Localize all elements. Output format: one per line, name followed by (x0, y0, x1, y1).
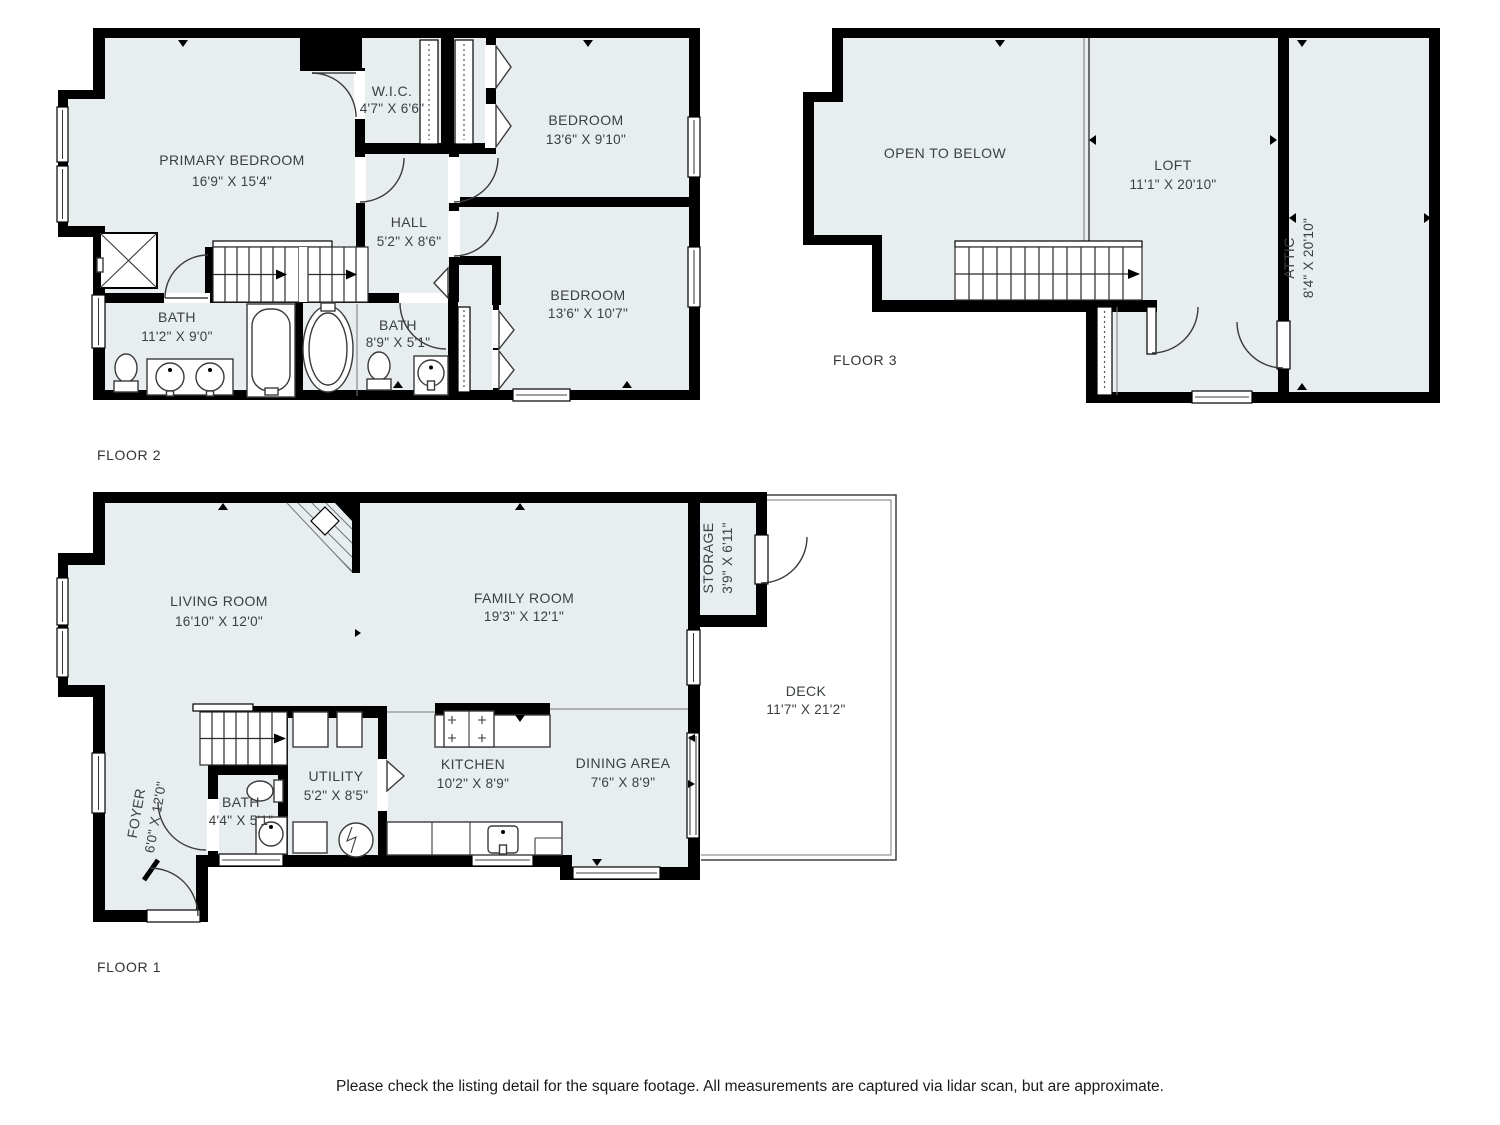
window (57, 628, 68, 677)
double-sink-vanity-icon (147, 359, 233, 396)
window (573, 867, 660, 879)
room-label-dining: DINING AREA (576, 755, 671, 771)
window (472, 854, 533, 866)
floor-1-plan: LIVING ROOM 16'10" X 12'0" FAMILY ROOM 1… (57, 492, 896, 975)
window (57, 166, 68, 222)
window (57, 107, 68, 162)
floor2-label: FLOOR 2 (97, 447, 161, 463)
room-label-open-to-below: OPEN TO BELOW (884, 145, 1007, 161)
window (688, 247, 700, 307)
room-dims-bedroom1: 13'6" X 9'10" (546, 132, 626, 147)
room-dims-utility: 5'2" X 8'5" (304, 788, 369, 803)
floorplan-svg: PRIMARY BEDROOM 16'9" X 15'4" W.I.C. 4'7… (0, 0, 1500, 1125)
room-dims-bedroom2: 13'6" X 10'7" (548, 306, 628, 321)
room-dims-attic: 8'4" X 20'10" (1301, 218, 1316, 298)
floor-2-plan: PRIMARY BEDROOM 16'9" X 15'4" W.I.C. 4'7… (57, 28, 700, 463)
room-label-bedroom2: BEDROOM (550, 287, 625, 303)
window (1192, 391, 1252, 403)
room-label-bedroom1: BEDROOM (548, 112, 623, 128)
floor3-label: FLOOR 3 (833, 352, 897, 368)
kitchen-sink-icon (488, 826, 518, 854)
stove-icon (435, 711, 550, 747)
toilet-icon (114, 354, 138, 392)
room-dims-storage: 3'9" X 6'11" (720, 522, 735, 593)
door-swing-icon (755, 535, 807, 584)
chimney-block (300, 38, 362, 71)
window (92, 295, 105, 348)
room-label-loft: LOFT (1154, 157, 1191, 173)
room-label-primary-bedroom: PRIMARY BEDROOM (159, 152, 305, 168)
sink-icon (414, 356, 448, 395)
floorplan-page: PRIMARY BEDROOM 16'9" X 15'4" W.I.C. 4'7… (0, 0, 1500, 1125)
room-label-living: LIVING ROOM (170, 593, 268, 609)
room-dims-wic: 4'7" X 6'6" (360, 101, 425, 116)
window (688, 117, 700, 177)
disclaimer-text: Please check the listing detail for the … (336, 1078, 1164, 1095)
room-label-kitchen: KITCHEN (441, 756, 505, 772)
room-dims-bath1: 11'2" X 9'0" (141, 329, 212, 344)
room-label-bath: BATH (222, 794, 260, 810)
room-dims-deck: 11'7" X 21'2" (766, 702, 845, 717)
kitchen-counter (387, 822, 562, 855)
washer-icon (293, 712, 362, 747)
window (92, 753, 105, 813)
room-dims-hall: 5'2" X 8'6" (377, 234, 442, 249)
floor3-windows (1192, 391, 1252, 403)
floor-3-plan: OPEN TO BELOW LOFT 11'1" X 20'10" ATTIC … (803, 28, 1440, 403)
room-dims-family: 19'3" X 12'1" (484, 609, 564, 624)
room-label-bath2: BATH (379, 317, 417, 333)
shower-icon (97, 233, 157, 288)
room-label-deck: DECK (786, 683, 827, 699)
room-dims-dining: 7'6" X 8'9" (591, 775, 656, 790)
room-label-hall: HALL (391, 214, 428, 230)
floor1-label: FLOOR 1 (97, 959, 161, 975)
room-label-attic: ATTIC (1281, 237, 1297, 278)
room-dims-bath: 4'4" X 5'1" (209, 813, 274, 828)
room-label-wic: W.I.C. (372, 83, 413, 99)
floor3-area (814, 38, 1429, 392)
room-label-family: FAMILY ROOM (474, 590, 574, 606)
window (513, 389, 570, 401)
room-dims-loft: 11'1" X 20'10" (1130, 177, 1217, 192)
stairs-floor1 (193, 704, 287, 765)
room-label-bath1: BATH (158, 309, 196, 325)
room-label-storage: STORAGE (700, 522, 716, 593)
room-dims-kitchen: 10'2" X 8'9" (437, 776, 509, 791)
room-label-utility: UTILITY (309, 768, 364, 784)
cabinet-icon (293, 822, 327, 853)
room-dims-bath2: 8'9" X 5'1" (366, 335, 431, 350)
toilet-icon (367, 352, 391, 390)
room-dims-primary-bedroom: 16'9" X 15'4" (192, 174, 272, 189)
stairs-floor2 (213, 241, 368, 302)
window (219, 854, 283, 866)
dryer-icon (339, 823, 373, 857)
room-dims-living: 16'10" X 12'0" (175, 614, 263, 629)
bathtub-icon (247, 304, 295, 397)
window (57, 578, 68, 625)
window (687, 630, 700, 685)
stairs-floor3 (955, 241, 1142, 300)
